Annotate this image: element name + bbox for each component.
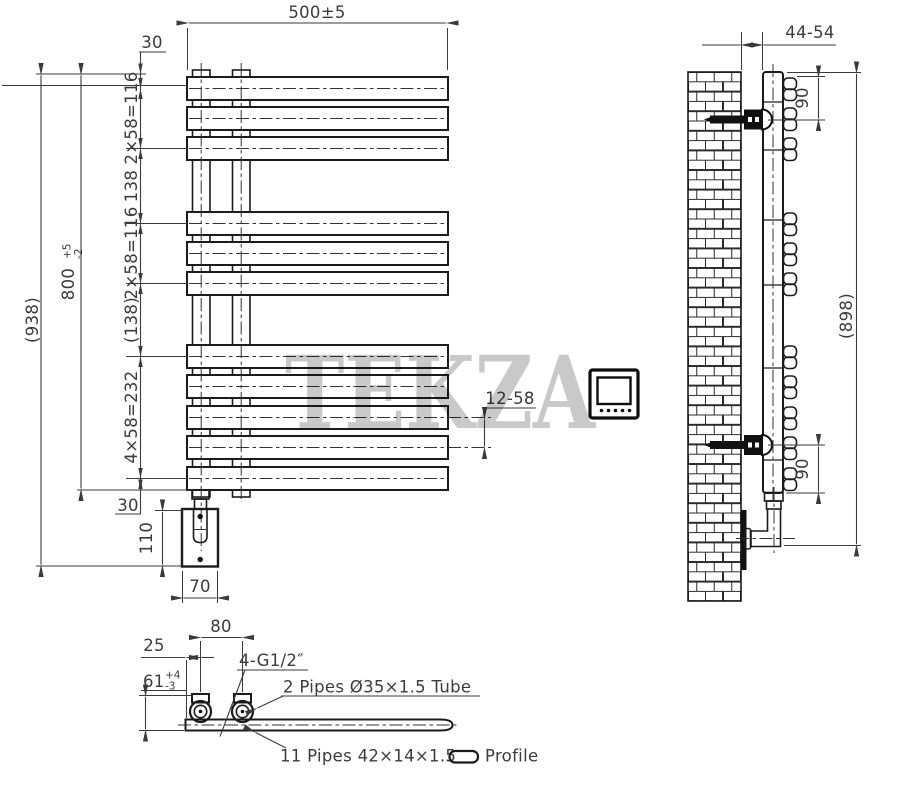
dim-gap1-label: 138 xyxy=(122,170,141,202)
dim-group1-label: 2×58=116 xyxy=(122,71,141,164)
dim-side-overall-label: (898) xyxy=(837,293,856,339)
wall-brick-section xyxy=(688,72,741,601)
dim-top-spacing-label: 90 xyxy=(793,87,812,109)
dim-overall-height-label: (938) xyxy=(23,297,42,343)
dim-bracket-width-label: 70 xyxy=(189,577,211,596)
dim-section-height-label: 61 +4 -3 xyxy=(143,670,181,693)
dim-pipe-spacing-label: 80 xyxy=(210,617,232,636)
watermark-text: TEKZA xyxy=(285,334,596,452)
dim-bottom-offset-label: 30 xyxy=(117,496,139,515)
thermostat-icon xyxy=(590,370,638,418)
svg-text:-2: -2 xyxy=(73,249,85,259)
radiator-technical-drawing: 500±5 (938) 800 +5 -2 30 2×58=116 138 2×… xyxy=(0,0,900,788)
profiles-label: 11 Pipes 42×14×1.5 xyxy=(280,747,456,766)
profile-icon-label: Profile xyxy=(485,747,538,766)
svg-text:61: 61 xyxy=(143,672,165,691)
svg-text:-3: -3 xyxy=(165,681,175,693)
thread-label: 4-G1/2″ xyxy=(239,651,304,670)
svg-text:800: 800 xyxy=(59,268,78,300)
dim-pipe-offset-label: 25 xyxy=(143,636,165,655)
dim-group3-label: 4×58=232 xyxy=(122,370,141,463)
dim-bracket-height-label: 110 xyxy=(137,522,156,554)
technical-drawing-page: 500±5 (938) 800 +5 -2 30 2×58=116 138 2×… xyxy=(0,0,900,788)
screw-icon xyxy=(198,514,203,519)
svg-text:+5: +5 xyxy=(62,244,74,259)
dim-gap2-label: (138) xyxy=(122,297,141,343)
screw-icon xyxy=(198,557,203,562)
dim-width-label: 500±5 xyxy=(288,3,345,22)
tube-label: 2 Pipes Ø35×1.5 Tube xyxy=(283,678,471,697)
dim-group2-label: 2×58=116 xyxy=(122,206,141,299)
dim-top-offset-label: 30 xyxy=(141,33,163,52)
dim-wall-distance-label: 44-54 xyxy=(785,23,834,42)
dim-bottom-spacing-label: 90 xyxy=(793,458,812,480)
